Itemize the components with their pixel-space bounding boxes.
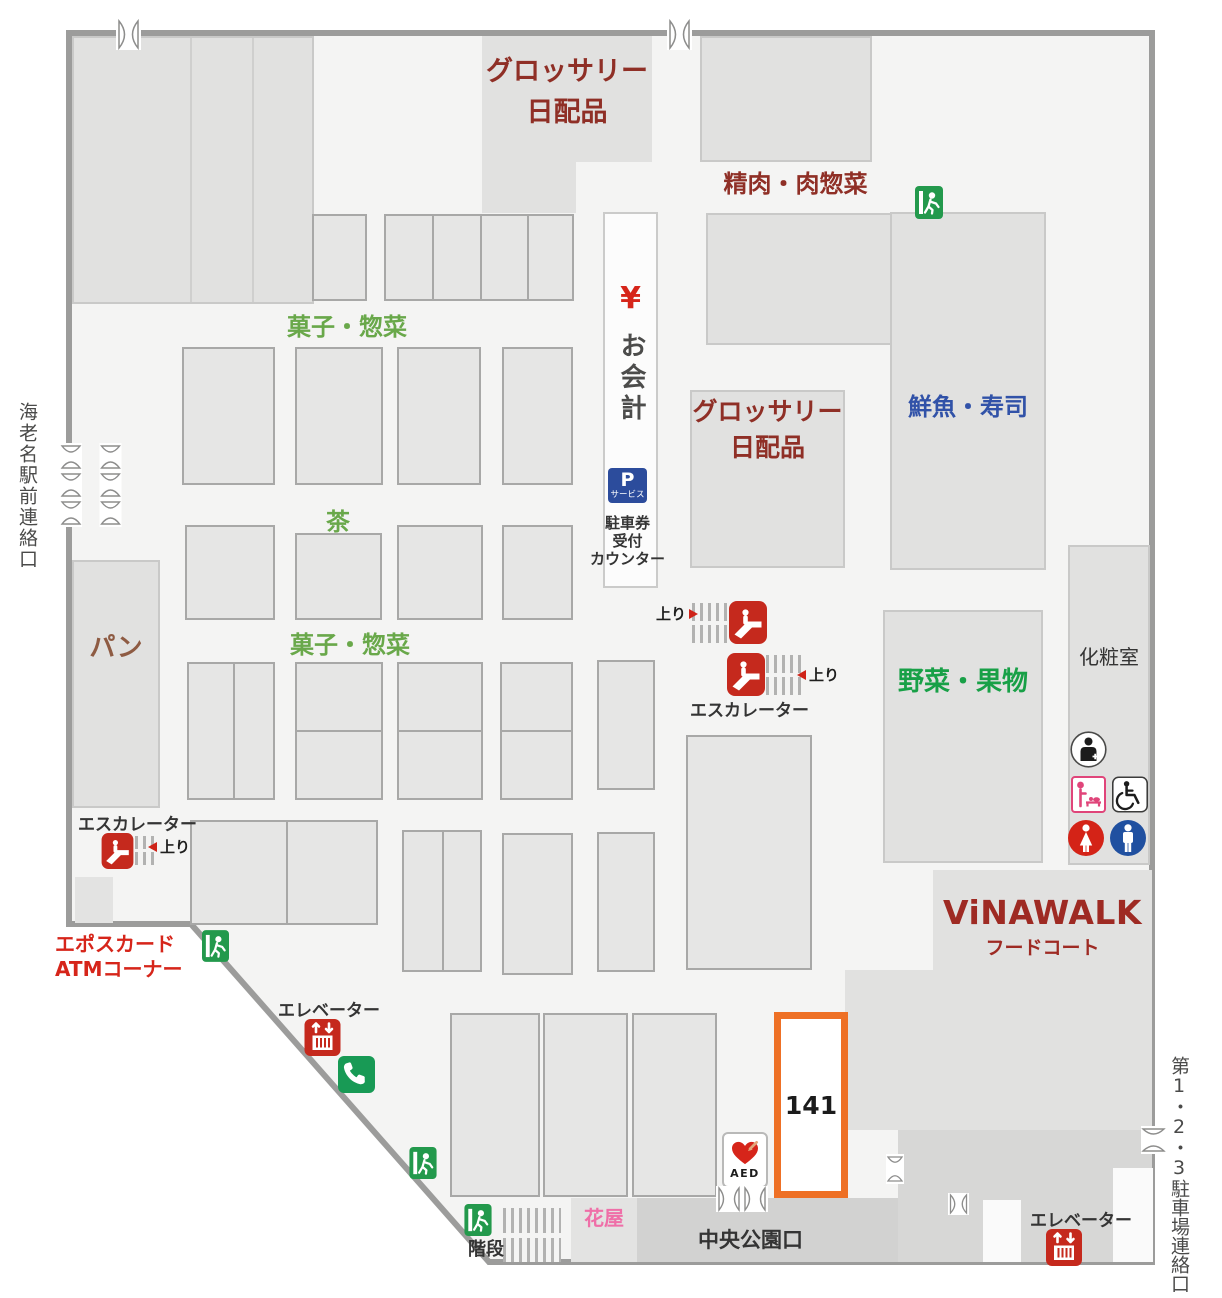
dept-label-sweets-upper: 菓子・惣菜 (272, 307, 422, 342)
dept-label-tea: 茶 (321, 502, 355, 537)
floor-map-canvas: 141 グロッサリー 日配品 精肉・肉惣菜 菓子・惣菜 茶 菓子・惣菜 パン グ… (0, 0, 1222, 1298)
shelf-block (502, 347, 573, 485)
elevator-label-southeast: エレベーター (1026, 1206, 1136, 1231)
escalator-label-center: エスカレーター (682, 696, 817, 721)
yen-mark: ¥ (603, 281, 658, 316)
shelf-block (295, 662, 383, 800)
dept-label-grocery-center: グロッサリー 日配品 (690, 394, 845, 467)
store-141-number: 141 (785, 1091, 837, 1120)
exit-icon (464, 1204, 492, 1236)
nursing-room-icon (1070, 731, 1107, 768)
escalator-icon (100, 833, 135, 869)
door-icon (948, 1193, 969, 1215)
dept-label-flower-shop: 花屋 (578, 1202, 630, 1231)
shelf-block (182, 347, 275, 485)
dept-label-fish: 鮮魚・寿司 (890, 387, 1046, 422)
epos-atm-label: エポスカード ATMコーナー (55, 932, 182, 982)
wheelchair-icon (1112, 776, 1148, 813)
escalator-icon (727, 653, 765, 696)
shelf-block (187, 662, 275, 800)
dept-block-meat-lower (706, 213, 912, 345)
parking-exit-label: 第1・2・3駐車場連絡口 (1166, 1056, 1193, 1298)
dept-label-vegetables: 野菜・果物 (885, 661, 1041, 698)
elevator-label-southwest: エレベーター (274, 996, 384, 1021)
up-label-1: 上り (656, 603, 698, 624)
shelf-block (500, 662, 573, 800)
dept-label-sweets-lower: 菓子・惣菜 (275, 625, 425, 660)
dept-block-vegetables (883, 610, 1043, 863)
dept-block-bread (72, 560, 160, 808)
shelf-block (312, 214, 367, 301)
shelf-block (597, 660, 655, 790)
p-service-letter: P (621, 471, 635, 490)
shelf-block (543, 1013, 628, 1197)
p-service-sub: サービス (610, 491, 644, 500)
small-block (75, 877, 113, 923)
exit-icon (409, 1147, 437, 1179)
vinawalk-logo: ViNAWALK (933, 896, 1152, 931)
mens-restroom-icon (1110, 820, 1146, 856)
arrow-left-icon (797, 670, 806, 680)
restroom-label: 化粧室 (1070, 641, 1148, 670)
shelf-block (402, 830, 482, 972)
door-icon (1141, 1126, 1166, 1154)
p-service-icon: P サービス (608, 468, 647, 503)
aed-icon: AED (722, 1132, 768, 1188)
exit-icon (202, 930, 229, 962)
shelf-block (632, 1013, 717, 1197)
door-icon (716, 1186, 768, 1212)
arrow-left-icon (148, 842, 157, 852)
shelf-block (185, 525, 275, 620)
elevator-icon (1046, 1229, 1082, 1266)
dept-block-meat-upper (700, 36, 872, 162)
center-block (686, 735, 812, 970)
dept-label-bread: パン (74, 627, 158, 664)
aed-label: AED (730, 1167, 760, 1180)
door-icon (60, 443, 82, 527)
door-icon (99, 443, 122, 527)
stairs-label: 階段 (468, 1235, 514, 1261)
shelf-block (190, 820, 378, 925)
exit-icon (915, 186, 943, 219)
shelf-block (295, 533, 382, 620)
checkout-label: お会計 (613, 332, 650, 425)
dept-block-grocery-top-ext (482, 160, 576, 213)
store-141-highlight[interactable]: 141 (774, 1012, 848, 1198)
station-exit-label: 海老名駅前連絡口 (14, 402, 41, 592)
restroom-zone (1068, 545, 1150, 865)
dept-label-meat: 精肉・肉惣菜 (698, 164, 893, 199)
dept-block-backroom-topleft (72, 36, 314, 304)
escalator-label-left: エスカレーター (78, 810, 206, 835)
shelf-block (502, 525, 573, 620)
shelf-block (502, 833, 573, 975)
heart-icon (730, 1140, 760, 1166)
food-court-block-ext (845, 970, 934, 1130)
shelf-block (384, 214, 574, 301)
up-label-2: 上り (797, 664, 839, 685)
food-court-label: フードコート (933, 933, 1152, 960)
dept-label-grocery-top: グロッサリー 日配品 (482, 52, 652, 133)
door-icon (667, 19, 692, 50)
door-icon (116, 19, 141, 50)
shelf-block (397, 347, 481, 485)
lower-cutout (983, 1200, 1021, 1262)
central-park-exit-label: 中央公園口 (698, 1224, 803, 1254)
door-icon (886, 1154, 904, 1184)
shelf-block (597, 832, 655, 972)
womens-restroom-icon (1068, 820, 1104, 856)
baby-changing-icon (1071, 776, 1106, 813)
escalator-icon (729, 601, 767, 644)
shelf-block (295, 347, 383, 485)
shelf-block (450, 1013, 540, 1197)
shelf-block (397, 525, 483, 620)
up-label-3: 上り (148, 836, 190, 857)
parking-counter-label: 駐車券 受付 カウンター (570, 514, 685, 568)
food-court-sign: ViNAWALK フードコート (933, 896, 1152, 960)
arrow-right-icon (689, 609, 698, 619)
phone-icon (338, 1056, 375, 1093)
shelf-block (397, 662, 483, 800)
elevator-icon (304, 1019, 341, 1056)
